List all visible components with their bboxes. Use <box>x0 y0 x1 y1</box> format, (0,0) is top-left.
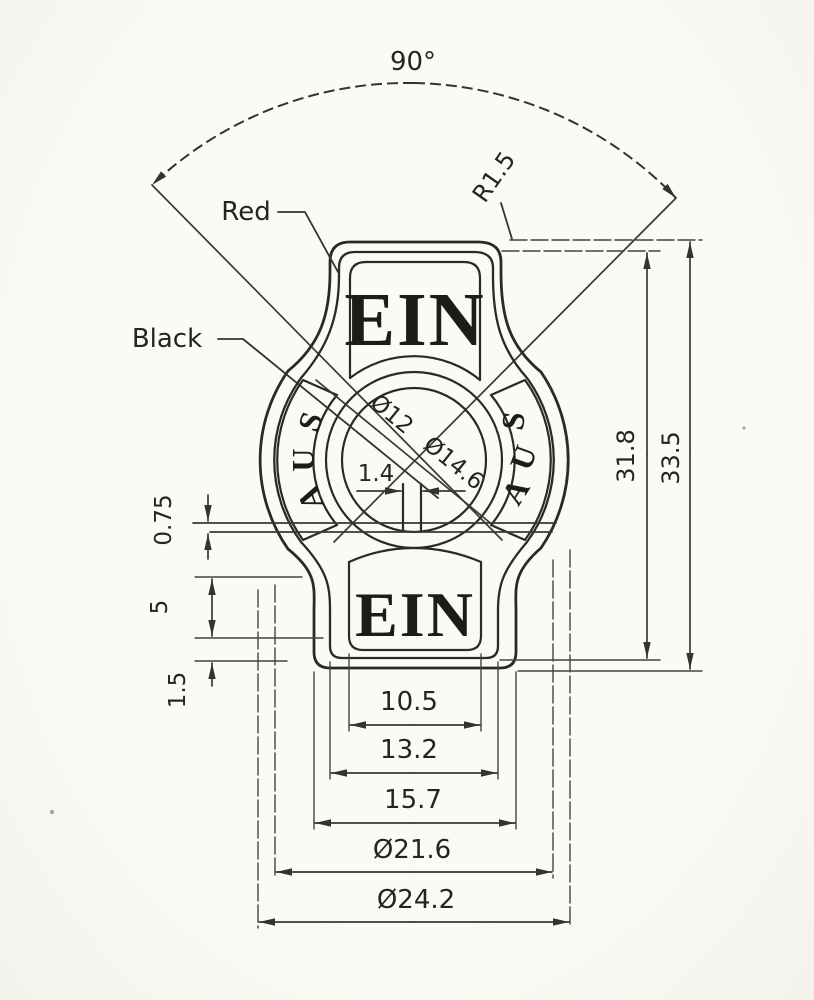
aus-left-letter-a: A <box>289 481 331 515</box>
width-inner-value: 10.5 <box>380 687 438 717</box>
width-outer-value: 15.7 <box>384 785 442 815</box>
red-label: Red <box>221 197 270 227</box>
angle-arc-left <box>152 83 414 185</box>
scan-speck <box>50 810 54 814</box>
width-mid-value: 13.2 <box>380 735 438 765</box>
aus-left-letter-s: S <box>290 407 330 436</box>
slot-dim-value: 1.4 <box>358 461 395 487</box>
height-outer-value: 33.5 <box>657 431 685 484</box>
ein-top-text: EIN <box>344 278 485 362</box>
lip-dim-value: 1.5 <box>165 672 191 709</box>
ein-bottom-text: EIN <box>355 579 475 650</box>
scanned-technical-drawing: 90° EIN EIN A U S A U S Ø12 Ø14.6 <box>0 0 814 1000</box>
aus-right-letter-s: S <box>494 410 532 433</box>
aus-left-text: A U S <box>285 407 331 515</box>
body-outer-dia-value: Ø24.2 <box>377 885 455 915</box>
step-dim-value: 0.75 <box>151 494 177 545</box>
outer-circle-dia-label: Ø14.6 <box>418 432 488 496</box>
angle-arc-right <box>414 83 676 198</box>
mid-dim-value: 5 <box>147 600 173 615</box>
aus-right-letter-u: U <box>502 441 544 475</box>
angle-value: 90° <box>390 47 436 77</box>
scan-speck <box>743 427 746 430</box>
black-label: Black <box>132 324 202 354</box>
aus-left-letter-u: U <box>285 448 321 471</box>
rocker-switch-drawing: 90° EIN EIN A U S A U S Ø12 Ø14.6 <box>0 0 814 1000</box>
inner-circle-dia-label: Ø12 <box>365 390 418 440</box>
corner-radius-leader <box>501 203 512 239</box>
corner-radius-label: R1.5 <box>467 147 521 208</box>
body-inner-dia-value: Ø21.6 <box>373 835 451 865</box>
left-dimension-stack: 0.75 5 1.5 <box>147 494 323 708</box>
corner-radius-dimension: R1.5 <box>467 147 521 239</box>
height-inner-value: 31.8 <box>612 429 640 482</box>
